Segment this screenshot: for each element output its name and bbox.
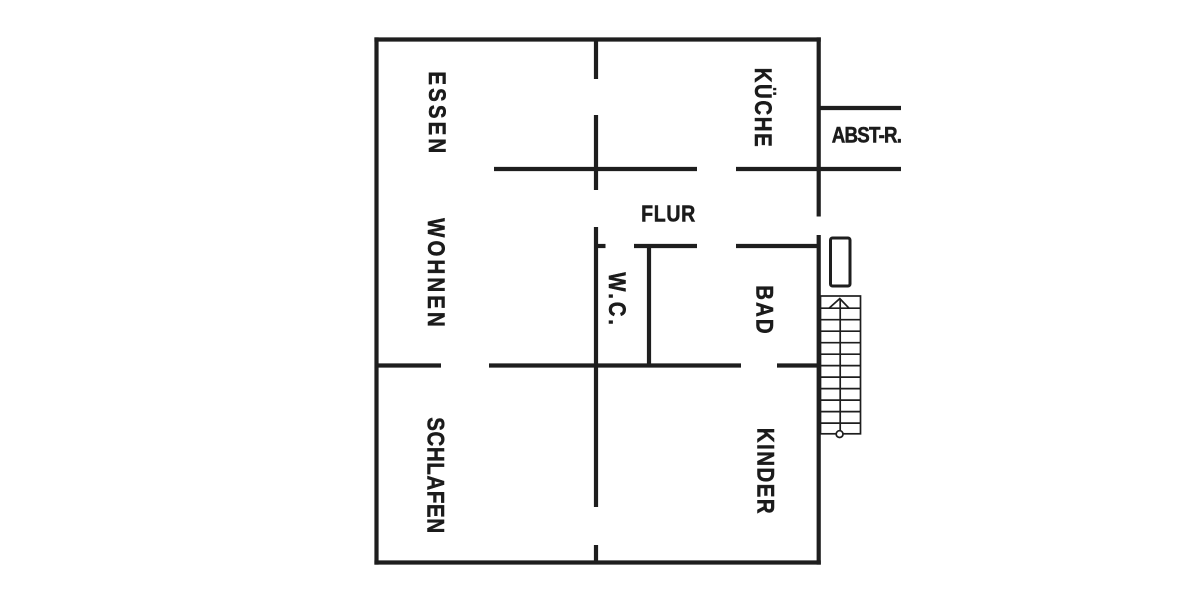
svg-text:ESSEN: ESSEN — [423, 71, 450, 156]
svg-text:KINDER: KINDER — [752, 428, 779, 515]
svg-text:SCHLAFEN: SCHLAFEN — [422, 417, 449, 533]
svg-text:BAD: BAD — [751, 285, 778, 336]
svg-text:W.C.: W.C. — [604, 272, 631, 327]
svg-text:KÜCHE: KÜCHE — [750, 68, 777, 149]
svg-text:ABST-R.: ABST-R. — [832, 124, 902, 148]
svg-text:FLUR: FLUR — [641, 201, 696, 227]
svg-text:WOHNEN: WOHNEN — [422, 218, 449, 330]
